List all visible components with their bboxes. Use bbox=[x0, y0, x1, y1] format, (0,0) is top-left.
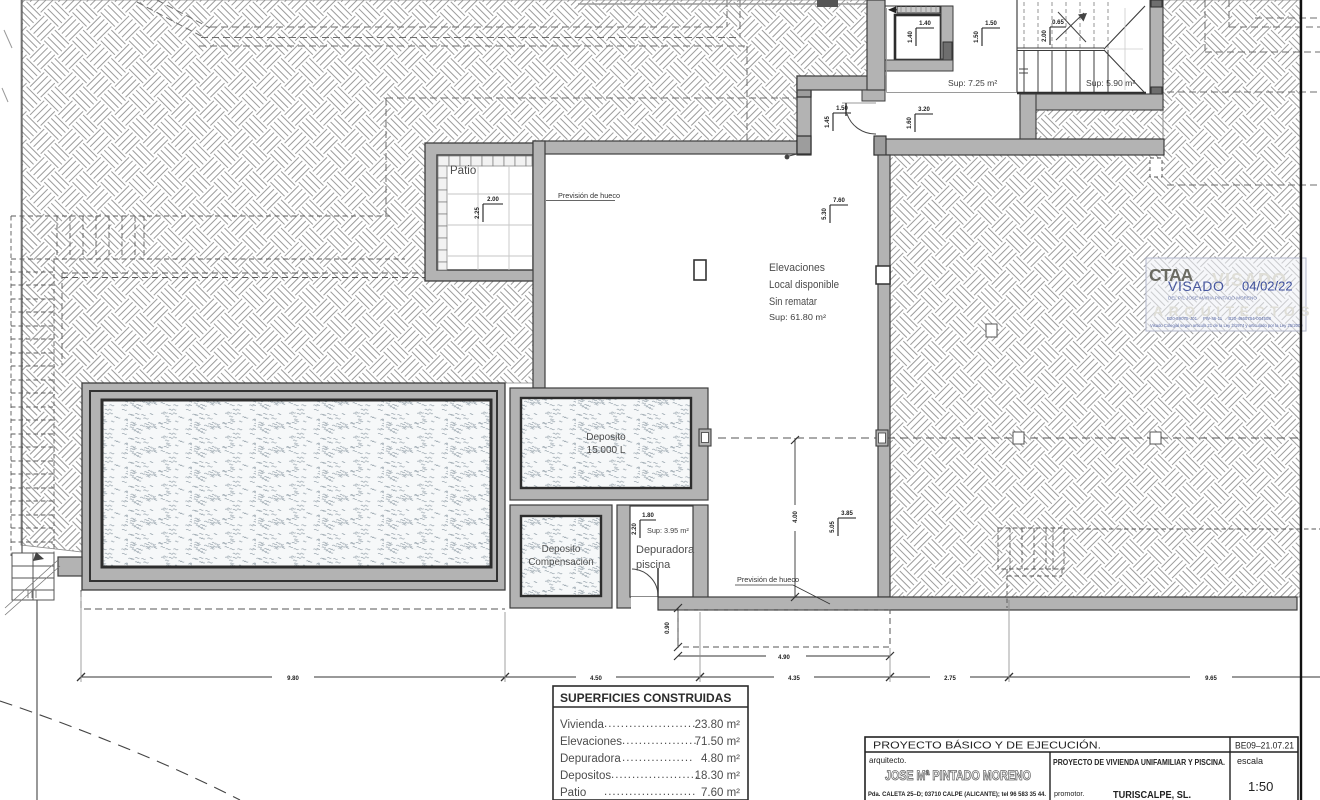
svg-text:BE09–21.07.21: BE09–21.07.21 bbox=[1235, 741, 1294, 752]
svg-text:piscina: piscina bbox=[636, 559, 671, 571]
svg-text:.....................: ..................... bbox=[611, 769, 699, 781]
svg-text:......................: ...................... bbox=[604, 786, 696, 798]
svg-text:4.50: 4.50 bbox=[590, 676, 602, 682]
svg-text:Sup: 3.95 m²: Sup: 3.95 m² bbox=[647, 526, 689, 535]
svg-text:2.00: 2.00 bbox=[1042, 30, 1048, 42]
svg-text:TURISCALPE, SL.: TURISCALPE, SL. bbox=[1113, 789, 1191, 800]
svg-text:4.80 m²: 4.80 m² bbox=[701, 753, 740, 765]
svg-text:promotor.: promotor. bbox=[1054, 789, 1084, 798]
svg-text:2.25: 2.25 bbox=[475, 207, 481, 219]
svg-text:3.20: 3.20 bbox=[918, 107, 930, 113]
svg-text:B20-59075-J01 FW-46-11: B20-59075-J01 FW-46-11 B20-4660754-00450… bbox=[1167, 316, 1271, 321]
svg-text:0.65: 0.65 bbox=[1052, 20, 1064, 26]
svg-text:1:50: 1:50 bbox=[1248, 779, 1273, 794]
svg-text:PROYECTO BÁSICO Y DE EJECU: PROYECTO BÁSICO Y DE EJECUCIÓN. bbox=[873, 739, 1101, 752]
svg-text:Previsión de hueco: Previsión de hueco bbox=[558, 191, 620, 200]
svg-text:Depuradora: Depuradora bbox=[636, 544, 695, 556]
svg-text:7.60 m²: 7.60 m² bbox=[701, 787, 740, 799]
svg-text:1.60: 1.60 bbox=[907, 117, 913, 129]
svg-text:3.85: 3.85 bbox=[841, 511, 853, 517]
svg-text:18.30 m²: 18.30 m² bbox=[695, 770, 741, 782]
svg-text:Patio: Patio bbox=[450, 165, 476, 177]
svg-text:Pda. CALETA 25–D; 03710 CALPE: Pda. CALETA 25–D; 03710 CALPE (ALICANTE)… bbox=[868, 791, 1046, 798]
svg-text:1.40: 1.40 bbox=[908, 31, 914, 43]
svg-text:2.20: 2.20 bbox=[632, 523, 638, 535]
svg-text:Depositos: Depositos bbox=[560, 770, 611, 782]
svg-text:15.000 L: 15.000 L bbox=[587, 445, 626, 456]
svg-text:1.50: 1.50 bbox=[974, 31, 980, 43]
svg-text:VISADO: VISADO bbox=[1168, 278, 1225, 294]
svg-text:Elevaciones: Elevaciones bbox=[769, 262, 825, 274]
svg-text:5.05: 5.05 bbox=[830, 521, 836, 533]
svg-text:1.45: 1.45 bbox=[825, 116, 831, 128]
svg-text:71.50 m²: 71.50 m² bbox=[695, 736, 741, 748]
svg-text:Depuradora: Depuradora bbox=[560, 753, 621, 765]
svg-text:9.80: 9.80 bbox=[287, 676, 299, 682]
svg-text:Patio: Patio bbox=[560, 787, 586, 799]
svg-text:..................: .................. bbox=[622, 735, 698, 747]
svg-text:Sup: 61.80 m²: Sup: 61.80 m² bbox=[769, 313, 826, 322]
svg-text:Vivienda: Vivienda bbox=[560, 719, 605, 731]
svg-text:1.50: 1.50 bbox=[836, 106, 848, 112]
svg-text:Visado Colegial segun articulo: Visado Colegial segun articulo 21 de la … bbox=[1150, 323, 1303, 328]
svg-text:5.30: 5.30 bbox=[822, 208, 828, 220]
svg-text:SUPERFICIES CONSTRUIDAS: SUPERFICIES CONSTRUIDAS bbox=[560, 691, 731, 705]
svg-text:4.00: 4.00 bbox=[793, 511, 799, 523]
svg-text:1.50: 1.50 bbox=[985, 21, 997, 27]
svg-text:1.40: 1.40 bbox=[919, 21, 931, 27]
svg-text:Deposito: Deposito bbox=[586, 432, 626, 443]
svg-text:......................: ...................... bbox=[604, 718, 696, 730]
svg-text:JOSE Mª PINTADO MORENO: JOSE Mª PINTADO MORENO bbox=[885, 768, 1031, 783]
svg-text:23.80 m²: 23.80 m² bbox=[695, 719, 741, 731]
svg-text:Previsión de hueco: Previsión de hueco bbox=[737, 575, 799, 584]
svg-text:.................: ................. bbox=[622, 752, 693, 764]
svg-text:2.75: 2.75 bbox=[944, 676, 956, 682]
svg-text:7.60: 7.60 bbox=[833, 198, 845, 204]
svg-text:Sup: 7.25 m²: Sup: 7.25 m² bbox=[948, 78, 997, 88]
svg-text:2.00: 2.00 bbox=[487, 197, 499, 203]
svg-text:Local disponible: Local disponible bbox=[769, 279, 839, 291]
svg-text:Elevaciones: Elevaciones bbox=[560, 736, 622, 748]
svg-text:escala: escala bbox=[1237, 756, 1263, 766]
svg-text:1.80: 1.80 bbox=[642, 513, 654, 519]
svg-text:Sup: 5.90 m²: Sup: 5.90 m² bbox=[1086, 78, 1135, 88]
svg-text:Sin rematar: Sin rematar bbox=[769, 296, 817, 308]
svg-text:0.90: 0.90 bbox=[665, 622, 671, 634]
svg-text:PROYECTO DE VIVIENDA UNIFAMILI: PROYECTO DE VIVIENDA UNIFAMILIAR Y PISCI… bbox=[1053, 758, 1225, 767]
svg-text:9.65: 9.65 bbox=[1205, 676, 1217, 682]
svg-text:4.35: 4.35 bbox=[788, 676, 800, 682]
svg-text:DEL P/L JOSE MARIA PINTADO MOR: DEL P/L JOSE MARIA PINTADO MORENO bbox=[1168, 296, 1257, 301]
svg-text:4.90: 4.90 bbox=[778, 655, 790, 661]
svg-text:arquitecto.: arquitecto. bbox=[869, 756, 906, 765]
svg-text:Compensacion: Compensacion bbox=[528, 557, 593, 568]
svg-text:04/02/22: 04/02/22 bbox=[1242, 279, 1293, 294]
svg-text:Deposito: Deposito bbox=[542, 544, 581, 555]
